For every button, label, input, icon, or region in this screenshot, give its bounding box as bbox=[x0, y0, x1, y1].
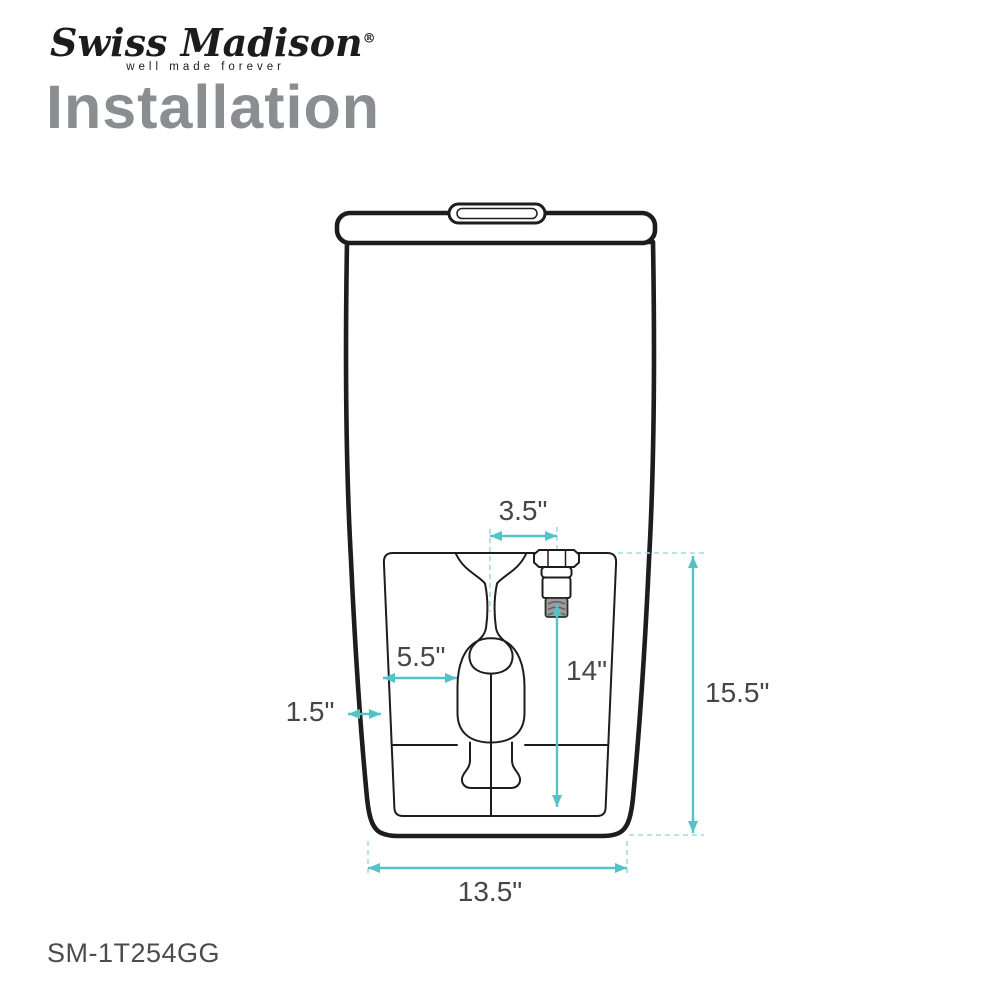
dim-label-supply-height: 14" bbox=[566, 655, 607, 686]
supply-valve-collar bbox=[542, 567, 572, 578]
toilet-installation-diagram: 3.5" 5.5" 1.5" 14" 15.5" 13.5" bbox=[0, 0, 1000, 1000]
supply-valve-hex-nut bbox=[534, 550, 579, 567]
installation-sheet: Swiss Madison® well made forever Install… bbox=[0, 0, 1000, 1000]
dim-label-supply-offset: 3.5" bbox=[499, 495, 548, 526]
supply-valve-body bbox=[543, 578, 571, 599]
dim-label-side-gap: 1.5" bbox=[286, 696, 335, 727]
dim-label-recess-height: 15.5" bbox=[705, 677, 769, 708]
flush-button bbox=[449, 204, 545, 223]
model-number: SM-1T254GG bbox=[47, 938, 220, 969]
dim-label-base-width: 13.5" bbox=[458, 876, 522, 907]
dim-label-recess-inset: 5.5" bbox=[397, 641, 446, 672]
